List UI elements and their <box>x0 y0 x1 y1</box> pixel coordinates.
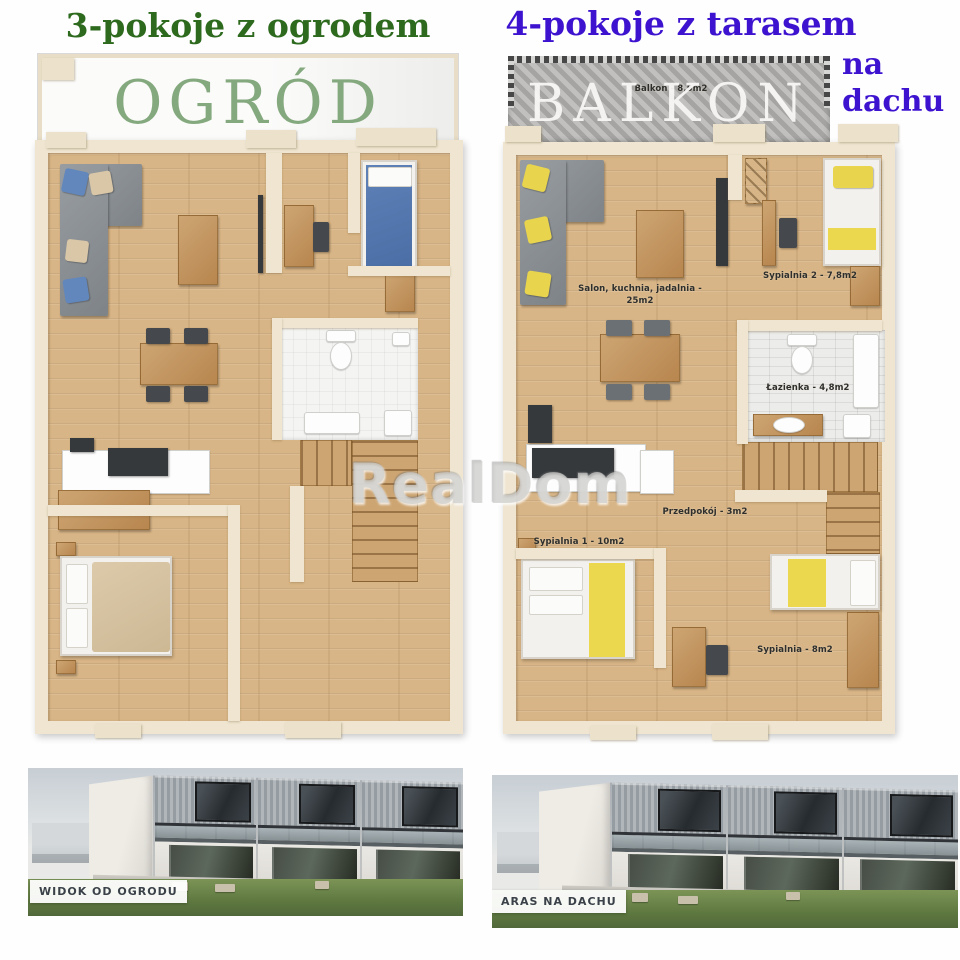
balcony-glass <box>258 825 360 846</box>
washer <box>384 410 412 436</box>
window <box>402 786 458 828</box>
floorplan-3-rooms <box>35 140 463 734</box>
garden-label: OGRÓD <box>42 58 454 138</box>
house-module <box>726 785 842 904</box>
house-module <box>256 778 360 893</box>
subtitle-line: na <box>842 46 958 83</box>
stairs <box>826 492 880 554</box>
room-label: Sypialnia - 8m2 <box>738 644 852 656</box>
toilet-tank <box>787 334 817 346</box>
blanket <box>788 559 826 607</box>
balcony-glass <box>154 823 256 844</box>
gable-wall <box>539 781 610 901</box>
kitchen-appliance <box>70 438 94 452</box>
house-module <box>610 783 726 902</box>
upper-facade <box>844 788 958 839</box>
partition-wall <box>48 505 230 516</box>
upper-facade <box>361 780 463 830</box>
chair <box>184 328 208 344</box>
partition-wall <box>737 320 748 444</box>
distant-house <box>32 823 89 863</box>
roof-balcony: Balkon - 8,5m2 BALKON <box>508 56 830 142</box>
partition-wall <box>272 318 282 440</box>
single-bed <box>770 554 880 610</box>
dining-table <box>600 334 680 382</box>
dresser <box>762 200 776 266</box>
wall-pier <box>712 724 768 740</box>
bed-pillow <box>529 567 583 591</box>
double-bed <box>521 559 635 659</box>
blanket <box>92 562 170 652</box>
room-label: Salon, kuchnia, jadalnia - 25m2 <box>565 283 715 307</box>
single-bed-blue <box>361 160 417 272</box>
chair <box>146 386 170 402</box>
coffee-table <box>636 210 684 278</box>
toilet <box>791 346 813 374</box>
balcony-glass <box>728 834 842 856</box>
bathtub <box>853 334 879 408</box>
chair <box>606 320 632 336</box>
single-bed <box>823 158 881 266</box>
nightstand <box>56 542 76 556</box>
pillow <box>62 276 89 303</box>
balcony-glass <box>612 832 726 854</box>
chair <box>644 320 670 336</box>
watermark: RealDom <box>330 452 650 516</box>
cabinet <box>284 205 314 267</box>
partition-wall <box>266 153 282 273</box>
washbasin-counter <box>304 412 360 434</box>
upper-facade <box>612 783 726 834</box>
balcony-glass <box>361 827 463 848</box>
pillow <box>524 216 552 244</box>
chair <box>313 222 329 252</box>
desk <box>672 627 706 687</box>
chair <box>779 218 797 248</box>
upper-facade <box>728 785 842 836</box>
subtitle-line: dachu <box>842 83 958 120</box>
stairs <box>742 442 878 492</box>
house-module <box>359 780 463 895</box>
wall-pier <box>42 58 74 80</box>
wall-pier <box>246 130 296 148</box>
patio-furniture <box>632 893 648 902</box>
blanket <box>589 563 625 657</box>
upper-facade <box>154 775 256 825</box>
cooktop <box>108 448 168 476</box>
partition-wall <box>728 155 742 200</box>
house-module <box>152 775 256 890</box>
coffee-table <box>178 215 218 285</box>
patio-furniture <box>786 892 800 900</box>
upper-facade <box>258 778 360 828</box>
wall-pier <box>46 132 86 148</box>
wall-pier <box>285 722 341 738</box>
window <box>658 789 721 832</box>
pillow <box>88 170 113 195</box>
double-bed <box>60 556 172 656</box>
washbasin <box>773 417 805 433</box>
room-label: Sypialnia 2 - 7,8m2 <box>753 270 867 282</box>
patio-furniture <box>215 884 235 892</box>
chair <box>644 384 670 400</box>
partition-wall <box>348 266 450 276</box>
partition-wall <box>348 153 360 233</box>
partition-wall <box>290 486 304 582</box>
floorplan-4-rooms: Salon, kuchnia, jadalnia - 25m2 Sypialni… <box>503 142 895 734</box>
wall-pier <box>505 126 541 142</box>
pillow <box>524 270 551 297</box>
sink <box>392 332 410 346</box>
washer <box>843 414 871 438</box>
patio-furniture <box>678 896 698 904</box>
partition-wall <box>516 548 663 559</box>
bed-pillow <box>833 166 873 188</box>
window <box>299 783 355 825</box>
partition-wall <box>735 490 827 502</box>
garden-view-photo: WIDOK OD OGRODU <box>28 768 463 916</box>
photo-caption: ARAS NA DACHU <box>492 890 626 913</box>
toilet <box>330 342 352 370</box>
chair <box>146 328 170 344</box>
wall-pier <box>95 724 141 738</box>
room-label: Przedpokój - 3m2 <box>645 506 765 518</box>
bed-pillow <box>529 595 583 615</box>
pillow <box>61 168 89 196</box>
dining-table <box>140 343 218 385</box>
wardrobe <box>745 158 767 204</box>
bathroom-floor <box>280 326 418 440</box>
left-plan-title: 3-pokoje z ogrodem <box>28 6 468 45</box>
blanket <box>828 228 876 250</box>
bed-pillow <box>66 564 88 604</box>
wall-pier <box>838 124 898 142</box>
bed-pillow <box>66 608 88 648</box>
balcony-glass <box>844 837 958 859</box>
bed-pillow <box>368 167 412 187</box>
tv <box>258 195 263 273</box>
cabinet <box>385 272 415 312</box>
chair <box>606 384 632 400</box>
balcony-label: BALKON <box>508 56 830 134</box>
partition-wall <box>654 548 666 668</box>
photo-caption: WIDOK OD OGRODU <box>30 880 187 903</box>
listing-collage: 3-pokoje z ogrodem OGRÓD <box>0 0 960 960</box>
right-plan-title: 4-pokoje z tarasem <box>492 4 870 43</box>
wall-pier <box>590 726 636 740</box>
room-label: Łazienka - 4,8m2 <box>748 382 868 394</box>
bed-pillow <box>850 560 876 606</box>
nightstand <box>56 660 76 674</box>
partition-wall <box>228 505 240 721</box>
chair <box>706 645 728 675</box>
window <box>774 791 837 834</box>
window <box>195 781 251 823</box>
gable-wall <box>89 774 153 890</box>
wall-pier <box>356 128 436 146</box>
room-label: Sypialnia 1 - 10m2 <box>520 536 638 548</box>
roof-terrace-photo: ARAS NA DACHU <box>492 775 958 928</box>
partition-wall <box>272 318 418 328</box>
tv-cabinet <box>716 178 728 266</box>
wall-pier <box>713 124 765 142</box>
partition-wall <box>737 320 882 331</box>
pillow <box>65 239 90 264</box>
window <box>890 794 953 837</box>
chair <box>184 386 208 402</box>
patio-furniture <box>315 881 329 889</box>
right-plan-subtitle: na dachu <box>842 46 958 120</box>
toilet-tank <box>326 330 356 342</box>
tall-cabinet <box>528 405 552 443</box>
